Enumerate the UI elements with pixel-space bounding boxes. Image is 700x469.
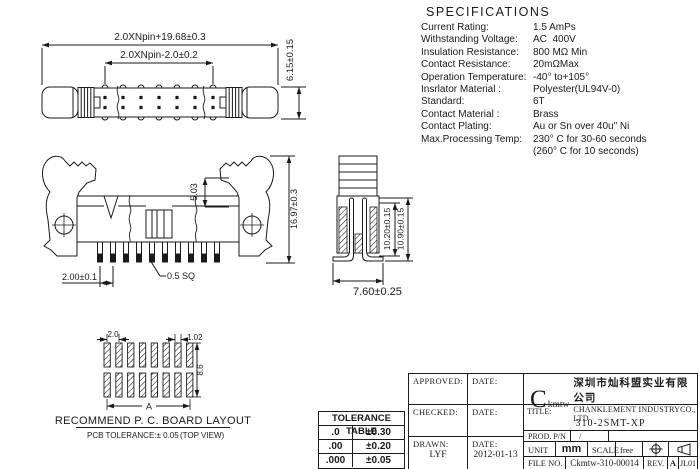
spec-label: Contact Material : (421, 109, 533, 121)
specifications-title: SPECIFICATIONS (426, 5, 699, 19)
code-cell: JL01 (679, 457, 697, 469)
spec-row: Current Rating: 1.5 AmPs (421, 22, 699, 34)
scale-label-cell: SCALE (588, 442, 616, 457)
tolerance-value: ±0.30 (353, 426, 404, 439)
specifications-block: SPECIFICATIONS Current Rating: 1.5 AmPs … (421, 5, 699, 158)
spec-row: Withstanding Voltage: AC 400V (421, 34, 699, 46)
spec-label: Insulation Resistance: (421, 47, 533, 59)
top-view-drawing: 2.0XNpin+19.68±0.3 2.0XNpin-2.0±0.2 (42, 32, 306, 120)
spec-value: AC 400V (533, 34, 576, 46)
drawn-cell: DRAWN: LYF (409, 437, 468, 469)
tolerance-digits: .0 (319, 426, 353, 439)
unit-value: mm (556, 442, 587, 455)
end-view-drawing: 10.20±0.15 10.90±0.15 7.60±0.25 (333, 156, 413, 298)
spec-value: (260° C for 10 seconds) (533, 146, 639, 158)
spec-label: Withstanding Voltage: (421, 34, 533, 46)
spec-label: Contact Resistance: (421, 59, 533, 71)
tolerance-table: TOLERANCE TABLE .0 ±0.30 .00 ±0.20 .000 … (318, 411, 405, 469)
pcb-layout-drawing: 2.0 1.02 8.6 A RECOMMEND P. C. BOARD LAY… (55, 330, 251, 440)
dim-top-height: 6.15±0.15 (285, 39, 296, 81)
spec-value: Au or Sn over 40u" Ni (533, 121, 629, 133)
prod-empty-cell (609, 431, 697, 442)
rev-value: A (668, 457, 678, 468)
spec-label: Contact Plating: (421, 121, 533, 133)
spec-value: -40° to+105° (533, 72, 589, 84)
projection-target-cell (643, 442, 669, 457)
spec-value: 6T (533, 96, 545, 108)
tolerance-digits: .000 (319, 454, 353, 467)
tolerance-row: .00 ±0.20 (319, 440, 404, 454)
drawing-title: 310-2SMT-XP (524, 418, 697, 429)
dim-pcb-row-span: 8.6 (196, 364, 205, 376)
projection-target-icon (649, 442, 663, 456)
drawn-date-cell: DATE: 2012-01-13 (468, 437, 524, 469)
pcb-note-view: (TOP VIEW) (180, 431, 224, 440)
scale-value-cell: free (616, 442, 643, 457)
company-cell: C kmtw 深圳市灿科盟实业有限公司 CHANKLEMENT INDUSTRY… (524, 374, 697, 405)
file-label: FILE NO. (524, 457, 565, 468)
dim-top-inner: 2.0XNpin-2.0±0.2 (120, 50, 198, 61)
dim-front-height: 16.97±0.3 (289, 189, 299, 229)
checked-cell: CHECKED: (409, 405, 468, 437)
dim-pcb-total: A (146, 402, 152, 412)
drawn-date-value: 2012-01-13 (468, 450, 523, 460)
prod-label-cell: PROD. P/N (524, 431, 571, 442)
unit-value-cell: mm (556, 442, 588, 457)
pcb-note: PCB TOLERANCE:± 0.05 (87, 431, 179, 440)
title-cell: TITLE: 310-2SMT-XP (524, 405, 697, 431)
dim-end-inner-height: 10.20±0.15 (382, 207, 392, 250)
dim-end-outer-height: 10.90±0.15 (396, 207, 406, 250)
tolerance-row: .000 ±0.05 (319, 454, 404, 467)
approved-date-cell: DATE: (468, 374, 524, 405)
spec-label: Insrlator Material : (421, 84, 533, 96)
dim-end-width: 7.60±0.25 (353, 286, 402, 298)
file-number: Ckmtw-310-00014 (566, 457, 643, 468)
tolerance-value: ±0.05 (353, 454, 404, 467)
rev-label: REV. (644, 457, 667, 468)
scale-value: free (616, 442, 642, 455)
dim-pcb-pad-width: 1.02 (187, 333, 203, 342)
tolerance-row: .0 ±0.30 (319, 426, 404, 440)
front-view-drawing: 2.00±0.1 0.5 SQ 5.03 16.97±0.3 (43, 156, 299, 287)
spec-label: Standard: (421, 96, 533, 108)
spec-label: Current Rating: (421, 22, 533, 34)
approved-label: APPROVED: (409, 374, 467, 386)
dim-pcb-pitch: 2.0 (107, 330, 119, 339)
spec-row: Insrlator Material : Polyester(UL94V-0) (421, 84, 699, 96)
spec-value: 20mΩMax (533, 59, 579, 71)
file-label-cell: FILE NO. (524, 457, 566, 469)
checked-label: CHECKED: (409, 405, 467, 417)
spec-value: 800 MΩ Min (533, 47, 587, 59)
dim-top-overall: 2.0XNpin+19.68±0.3 (114, 32, 206, 43)
date-label: DATE: (468, 405, 523, 417)
spec-row: Operation Temperature: -40° to+105° (421, 72, 699, 84)
spec-row: Contact Plating: Au or Sn over 40u" Ni (421, 121, 699, 133)
front-pins (98, 242, 220, 262)
spec-row: (260° C for 10 seconds) (421, 146, 699, 158)
projection-cone-icon (674, 443, 692, 456)
code-value: JL01 (679, 457, 697, 468)
spec-row: Contact Material : Brass (421, 109, 699, 121)
dim-front-pin-size: 0.5 SQ (167, 271, 195, 281)
tolerance-digits: .00 (319, 440, 353, 453)
scale-label: SCALE (588, 442, 615, 455)
spec-row: Contact Resistance: 20mΩMax (421, 59, 699, 71)
drawn-label: DRAWN: (409, 437, 467, 449)
date-label: DATE: (468, 374, 523, 386)
dim-front-latch: 5.03 (189, 183, 199, 201)
file-value-cell: Ckmtw-310-00014 (566, 457, 644, 469)
rev-value-cell: A (668, 457, 679, 469)
pcb-caption: RECOMMEND P. C. BOARD LAYOUT (55, 415, 251, 427)
spec-row: Insulation Resistance: 800 MΩ Min (421, 47, 699, 59)
unit-label-cell: UNIT (524, 442, 556, 457)
spec-row: Max.Processing Temp: 230° C for 30-60 se… (421, 134, 699, 146)
drawing-sheet: 2.0XNpin+19.68±0.3 2.0XNpin-2.0±0.2 (0, 0, 700, 469)
pcb-pads (104, 343, 193, 397)
spec-label (421, 146, 533, 158)
projection-cone-cell (669, 442, 697, 457)
date-label: DATE: (468, 437, 523, 449)
checked-date-cell: DATE: (468, 405, 524, 437)
prod-label: PROD. P/N (524, 431, 570, 441)
rev-label-cell: REV. (644, 457, 668, 469)
tolerance-table-title: TOLERANCE TABLE (319, 412, 404, 426)
spec-label: Operation Temperature: (421, 72, 533, 84)
prod-value-cell: / (571, 431, 609, 442)
tolerance-value: ±0.20 (353, 440, 404, 453)
spec-value: 1.5 AmPs (533, 22, 576, 34)
drawn-value: LYF (409, 450, 467, 460)
spec-value: Brass (533, 109, 559, 121)
spec-label: Max.Processing Temp: (421, 134, 533, 146)
prod-value: / (571, 431, 608, 441)
title-block: APPROVED: DATE: CHECKED: DATE: DRAWN: LY… (408, 373, 698, 469)
company-name-cn: 深圳市灿科盟实业有限公司 (573, 375, 697, 405)
spec-value: 230° C for 30-60 seconds (533, 134, 647, 146)
title-label: TITLE: (524, 405, 697, 416)
unit-label: UNIT (524, 442, 555, 455)
spec-row: Standard: 6T (421, 96, 699, 108)
dim-front-pitch: 2.00±0.1 (62, 272, 97, 282)
spec-value: Polyester(UL94V-0) (533, 84, 620, 96)
approved-cell: APPROVED: (409, 374, 468, 405)
